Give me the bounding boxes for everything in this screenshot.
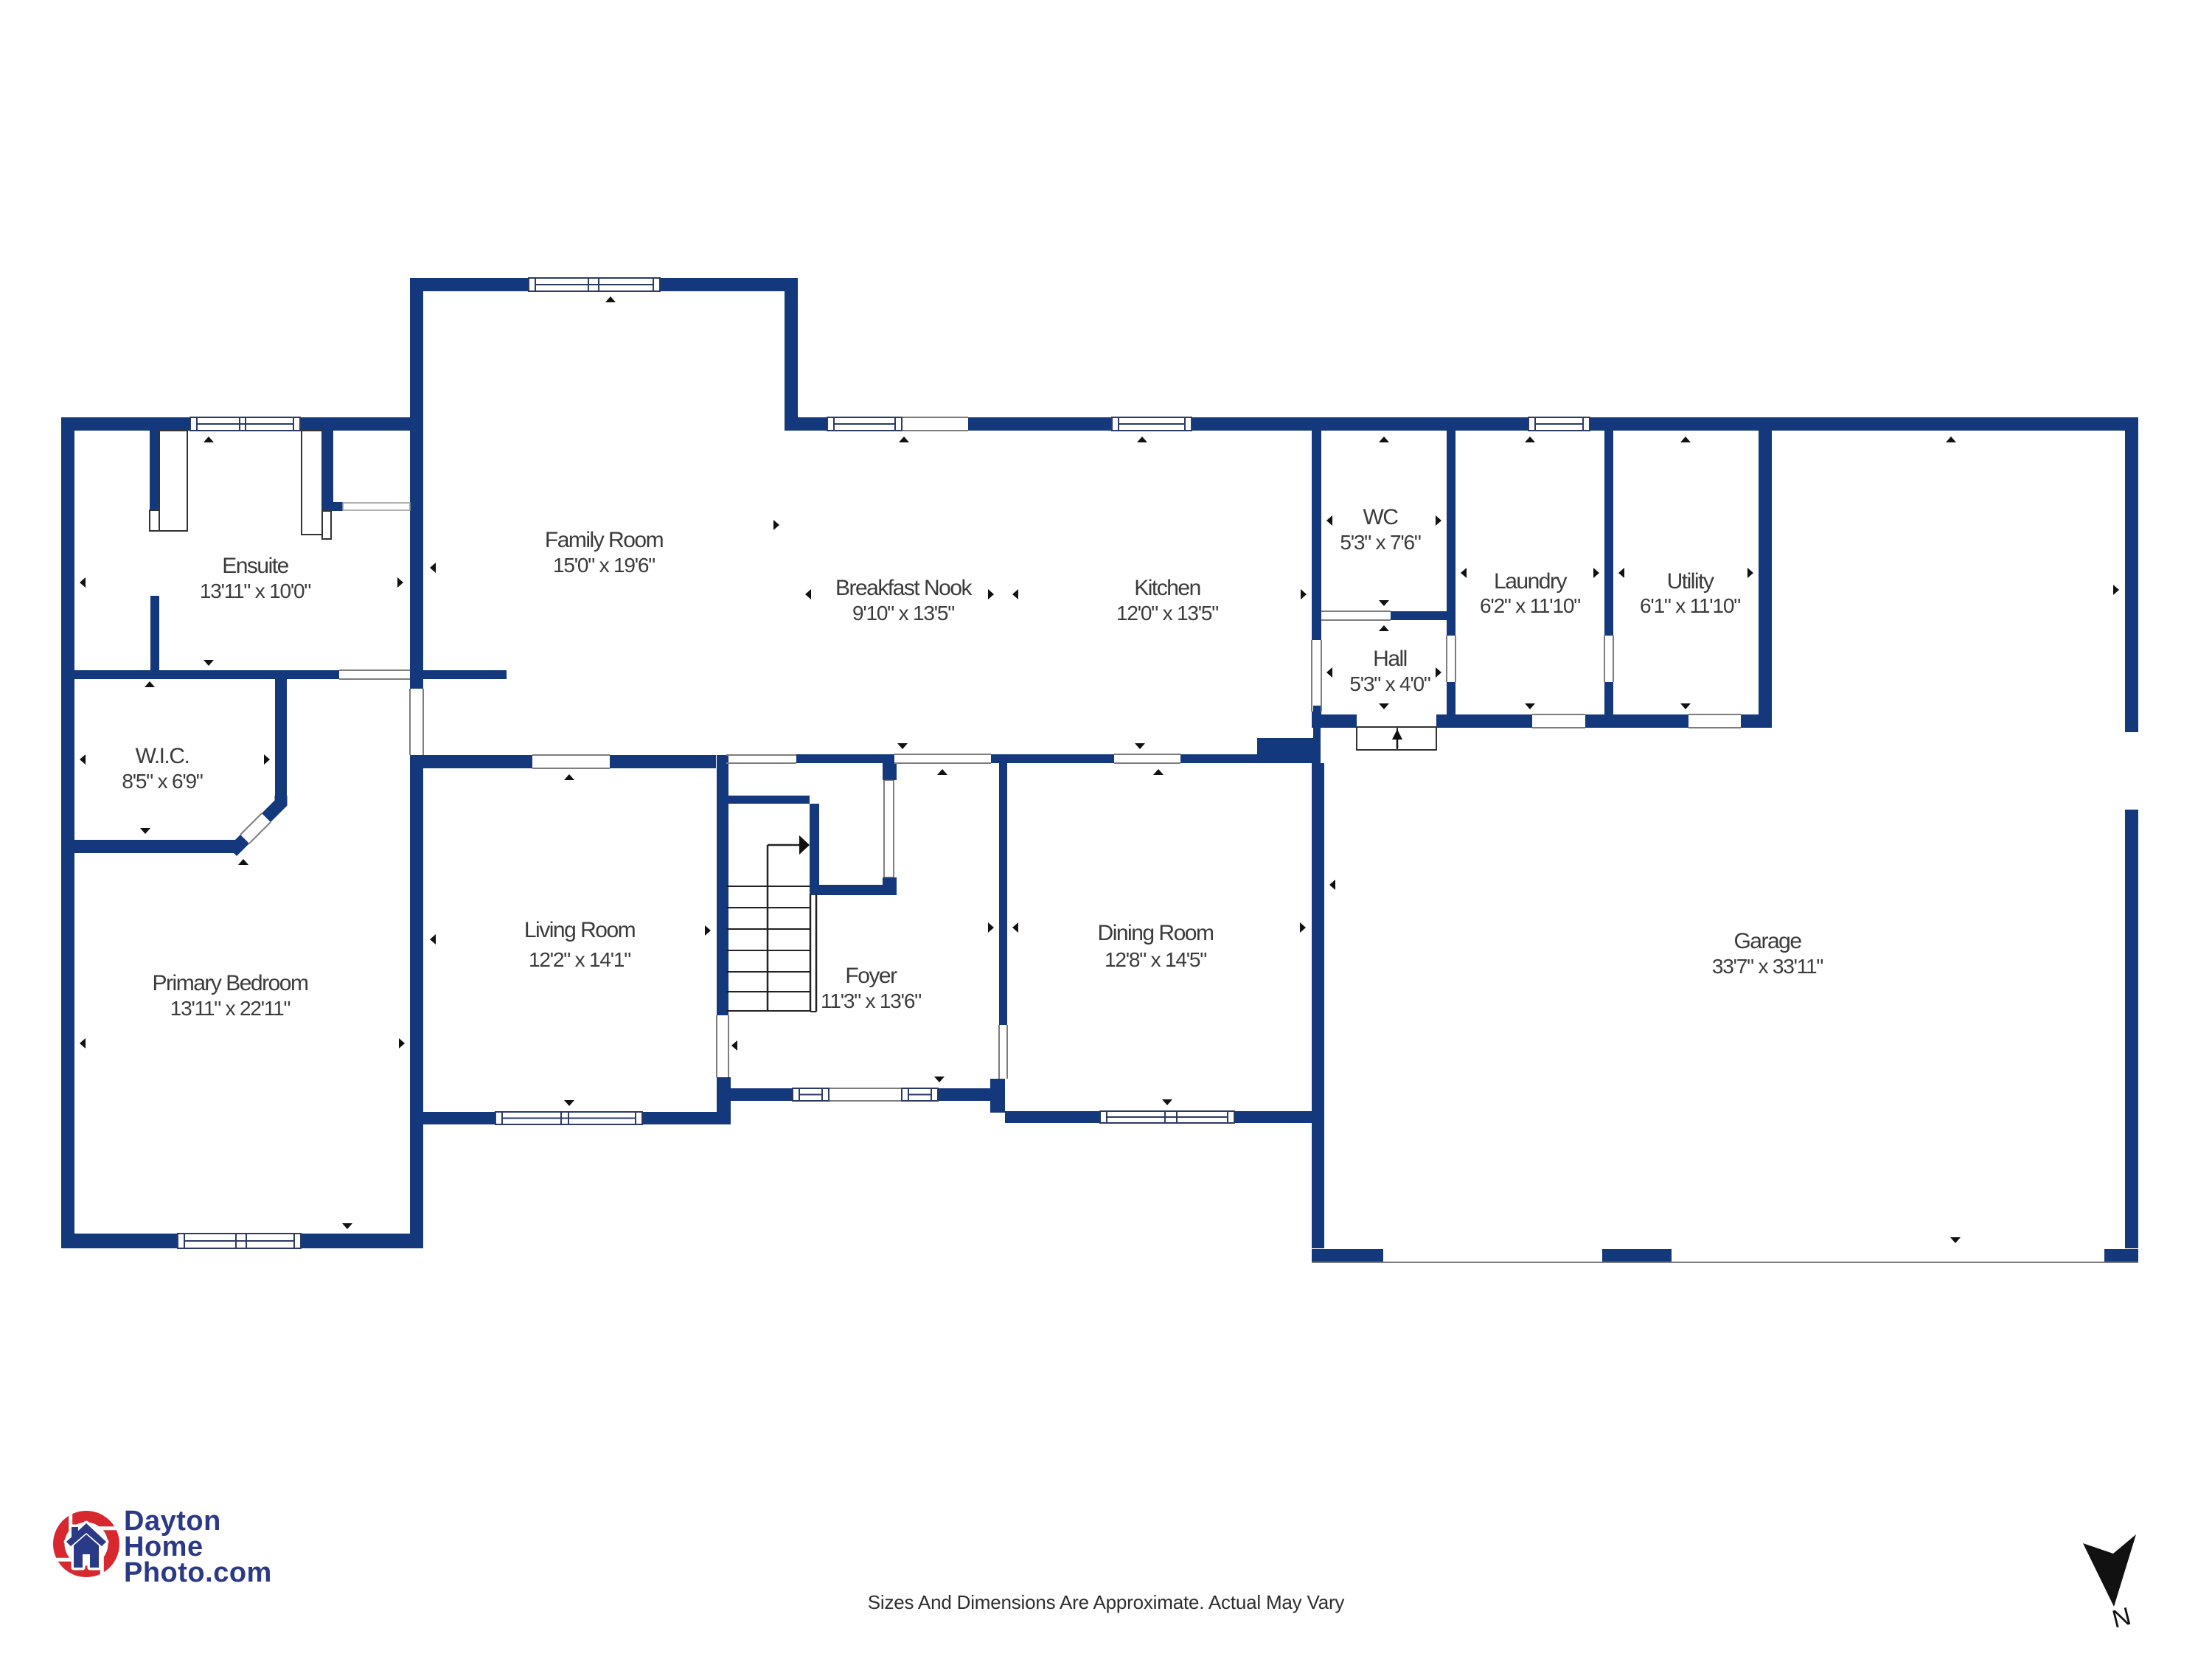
svg-text:13'11" x 10'0": 13'11" x 10'0" <box>200 580 311 602</box>
svg-text:Living Room: Living Room <box>524 918 636 942</box>
svg-text:Ensuite: Ensuite <box>222 554 288 578</box>
svg-text:6'2" x 11'10": 6'2" x 11'10" <box>1480 594 1580 617</box>
svg-text:9'10" x 13'5": 9'10" x 13'5" <box>852 602 954 625</box>
svg-text:33'7" x 33'11": 33'7" x 33'11" <box>1712 955 1823 978</box>
svg-text:12'0" x 13'5": 12'0" x 13'5" <box>1116 602 1218 625</box>
svg-text:Laundry: Laundry <box>1494 569 1567 594</box>
svg-text:W.I.C.: W.I.C. <box>136 744 189 768</box>
svg-text:Hall: Hall <box>1373 647 1407 671</box>
svg-text:15'0" x 19'6": 15'0" x 19'6" <box>553 554 655 577</box>
svg-text:6'1" x 11'10": 6'1" x 11'10" <box>1640 594 1740 617</box>
svg-text:5'3" x 4'0": 5'3" x 4'0" <box>1349 672 1430 695</box>
svg-text:12'8" x 14'5": 12'8" x 14'5" <box>1105 948 1206 971</box>
svg-text:13'11" x 22'11": 13'11" x 22'11" <box>170 997 291 1020</box>
svg-text:Kitchen: Kitchen <box>1134 576 1200 600</box>
svg-text:5'3" x 7'6": 5'3" x 7'6" <box>1340 531 1420 554</box>
svg-text:Garage: Garage <box>1733 929 1801 953</box>
svg-text:Dining Room: Dining Room <box>1098 921 1214 945</box>
svg-text:Breakfast Nook: Breakfast Nook <box>835 576 973 600</box>
svg-text:11'3" x 13'6": 11'3" x 13'6" <box>821 990 921 1012</box>
svg-text:Family Room: Family Room <box>545 528 664 552</box>
svg-text:Primary Bedroom: Primary Bedroom <box>153 971 308 995</box>
svg-text:12'2" x 14'1": 12'2" x 14'1" <box>529 948 630 971</box>
svg-text:WC: WC <box>1363 505 1399 529</box>
svg-text:8'5" x 6'9": 8'5" x 6'9" <box>122 770 202 793</box>
svg-text:Foyer: Foyer <box>845 964 897 988</box>
svg-text:Photo.com: Photo.com <box>124 1557 272 1588</box>
svg-text:Sizes And Dimensions Are Appro: Sizes And Dimensions Are Approximate. Ac… <box>868 1591 1345 1613</box>
svg-text:Utility: Utility <box>1667 569 1714 594</box>
